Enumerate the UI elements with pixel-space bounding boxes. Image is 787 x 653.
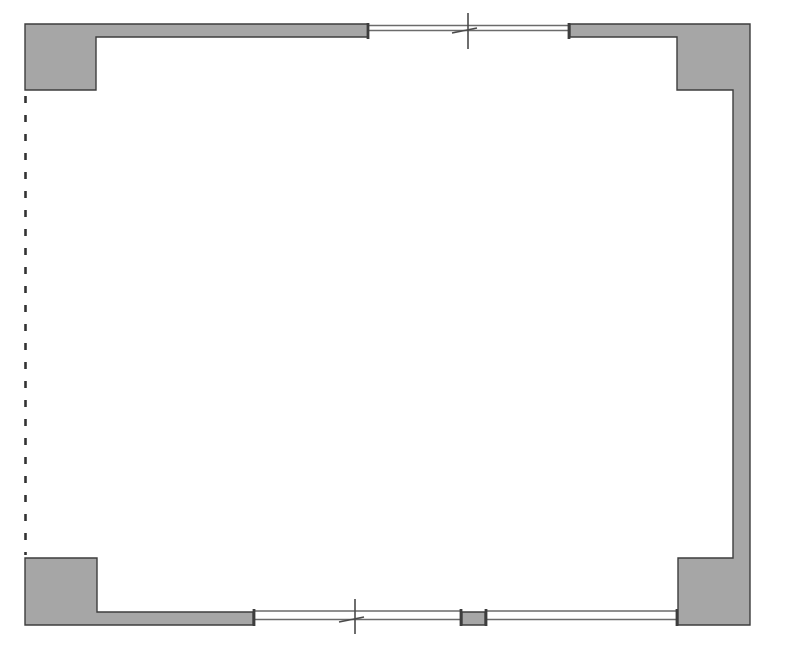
floorplan-svg xyxy=(0,0,787,653)
floorplan-canvas xyxy=(0,0,787,653)
drawing-background xyxy=(0,0,787,653)
window-mullion-pier xyxy=(462,612,485,625)
